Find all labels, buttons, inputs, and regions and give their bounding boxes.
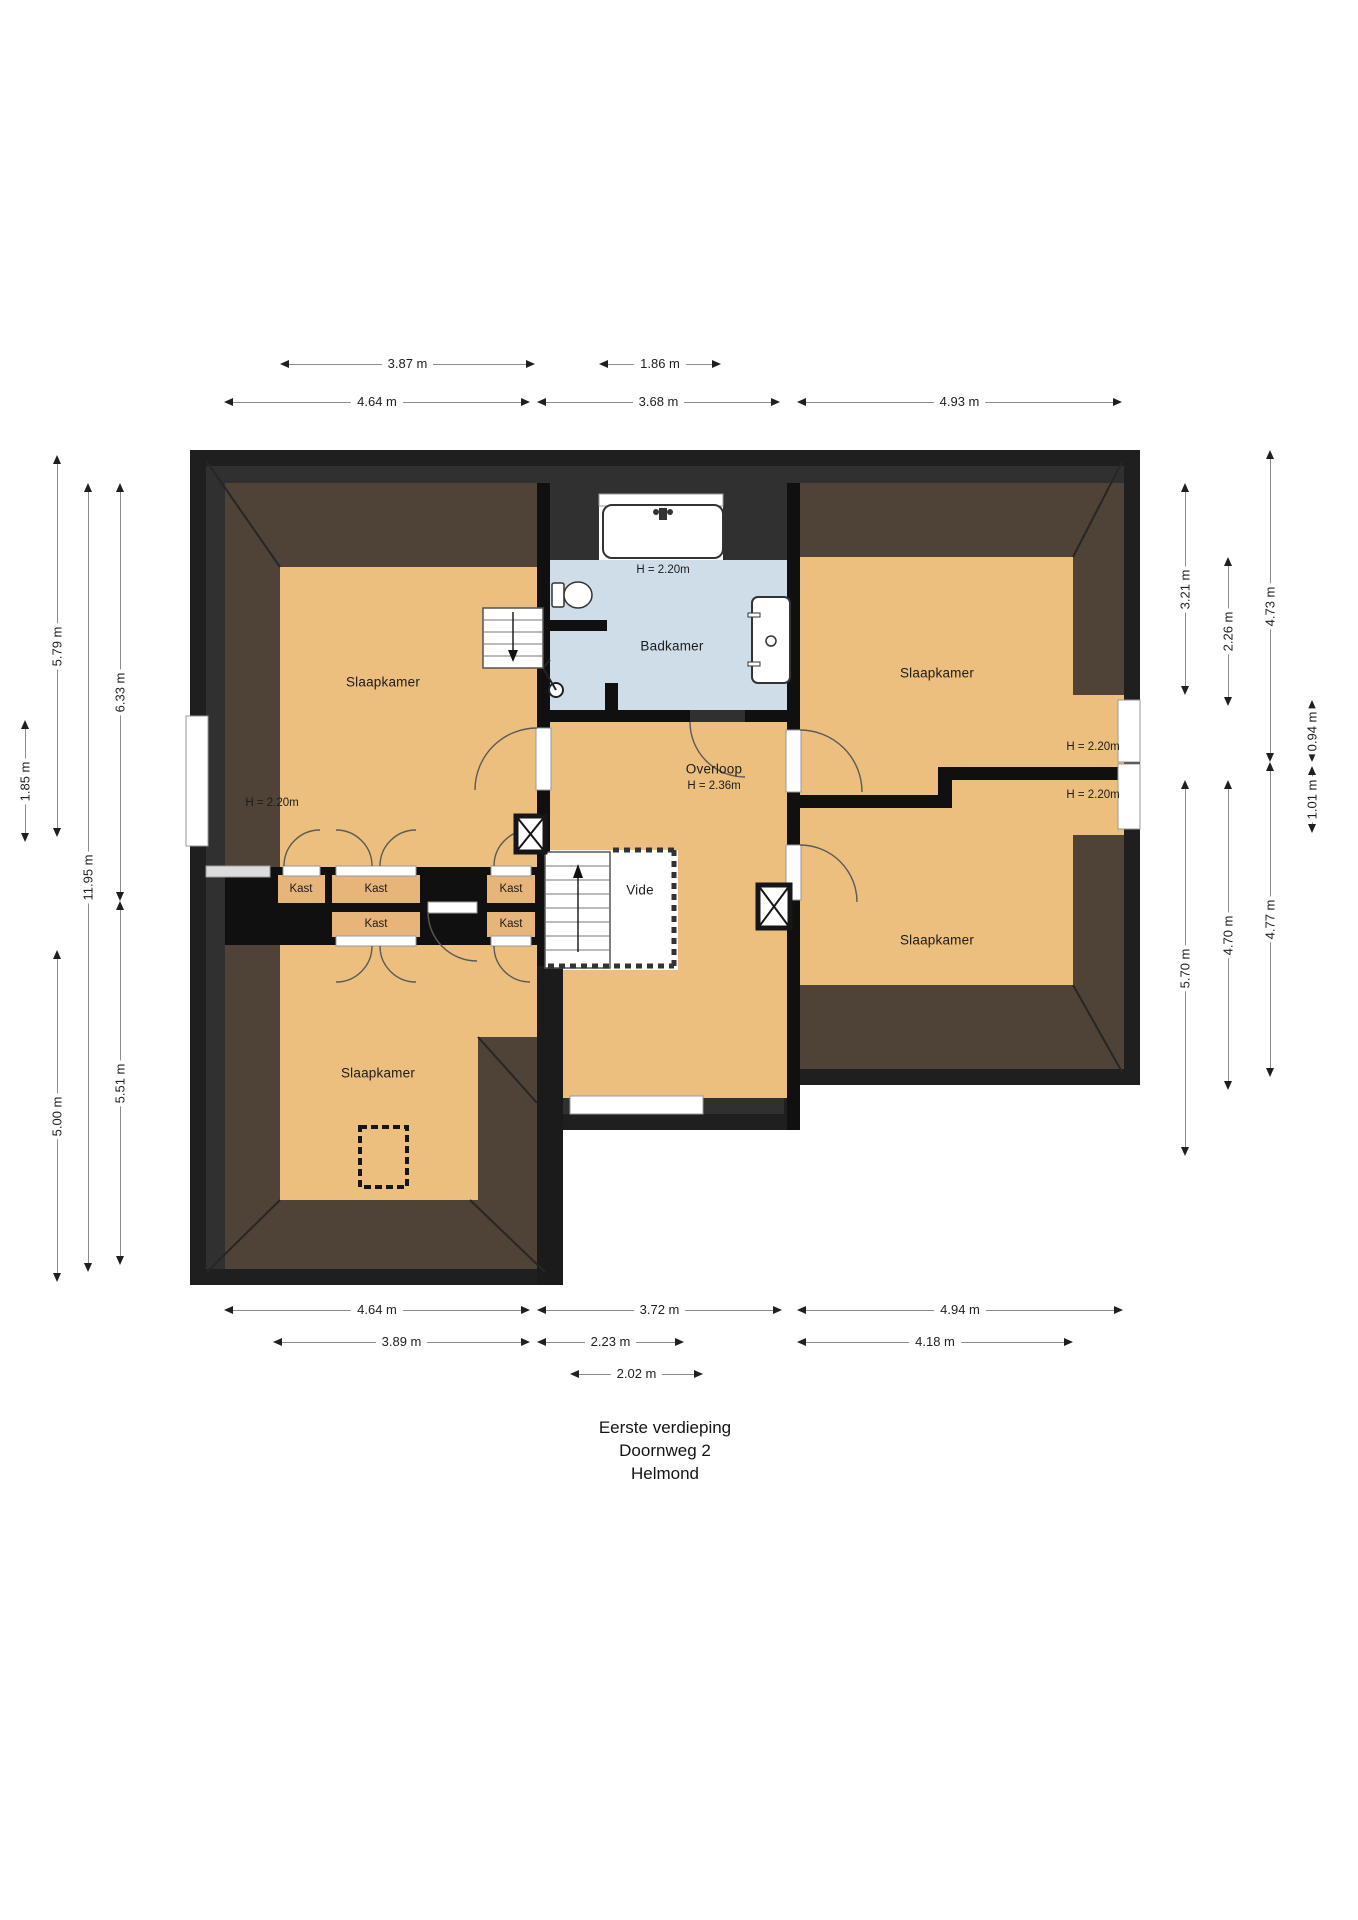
door-kast3 [336,936,416,946]
door-kast1 [283,866,320,876]
door-bedroom-topright [786,730,801,792]
dim-right-226: 2.26 m [1222,557,1234,706]
bathtub-icon [603,505,723,558]
label-kast-4: Kast [499,883,522,895]
label-bedroom-bottomleft: Slaapkamer [341,1066,415,1081]
label-kast-2: Kast [364,883,387,895]
dim-left-551: 5.51 m [114,901,126,1265]
door-kast5 [491,936,531,946]
window-south [570,1096,703,1114]
dim-right-470: 4.70 m [1222,780,1234,1090]
dim-top-387: 3.87 m [280,358,535,370]
stairs-down [483,608,543,668]
dim-bottom-418: 4.18 m [797,1336,1073,1348]
label-vide: Vide [626,883,654,898]
label-bathroom: Badkamer [640,639,703,654]
dim-bottom-202: 2.02 m [570,1368,703,1380]
label-h-overloop: H = 2.36m [687,780,740,792]
toilet-icon [552,582,592,608]
room-floors [225,494,1124,1200]
label-h-right-1: H = 2.20m [1066,741,1119,753]
dim-right-094: 0.94 m [1306,700,1318,762]
shaft-box-2 [758,885,790,928]
shaft-box-1 [516,816,545,852]
dim-bottom-494: 4.94 m [797,1304,1123,1316]
dim-left-633: 6.33 m [114,483,126,901]
door-bedroom-topleft [536,728,551,790]
door-kast2 [336,866,416,876]
label-h-bathroom: H = 2.20m [636,564,689,576]
dim-top-368: 3.68 m [537,396,780,408]
label-kast-1: Kast [289,883,312,895]
label-bedroom-topleft: Slaapkamer [346,675,420,690]
label-overloop: Overloop [686,762,742,777]
dim-left-500: 5.00 m [51,950,63,1282]
window-closet-row [206,866,270,877]
dim-left-1195: 11.95 m [82,483,94,1272]
floorplan-drawing [0,0,1358,1920]
label-bedroom-bottomright: Slaapkamer [900,933,974,948]
label-bedroom-topright: Slaapkamer [900,666,974,681]
label-kast-3: Kast [364,918,387,930]
window-left [186,716,208,846]
dim-left-579: 5.79 m [51,455,63,837]
floorplan-page: Slaapkamer H = 2.20m Badkamer H = 2.20m … [0,0,1358,1920]
dim-right-473: 4.73 m [1264,450,1276,762]
dim-right-477: 4.77 m [1264,762,1276,1077]
label-h-bedroom-topleft: H = 2.20m [245,797,298,809]
dim-top-493: 4.93 m [797,396,1122,408]
label-kast-5: Kast [499,918,522,930]
plan-title-city: Helmond [599,1462,731,1485]
dim-right-570: 5.70 m [1179,780,1191,1156]
dim-top-464: 4.64 m [224,396,530,408]
window-right-bottom [1118,764,1140,829]
dim-right-101: 1.01 m [1306,766,1318,833]
door-closet-mid [428,902,477,913]
dim-bottom-464: 4.64 m [224,1304,530,1316]
dim-bottom-372: 3.72 m [537,1304,782,1316]
window-right-top [1118,700,1140,762]
plan-title-address: Doornweg 2 [599,1439,731,1462]
dim-left-185: 1.85 m [19,720,31,842]
plan-title-floor: Eerste verdieping [599,1416,731,1439]
dim-bottom-223: 2.23 m [537,1336,684,1348]
door-kast4 [491,866,531,876]
dim-top-186: 1.86 m [599,358,721,370]
floor-overloop [537,722,787,850]
plan-title: Eerste verdieping Doornweg 2 Helmond [599,1416,731,1485]
washbasin-icon [748,597,790,683]
dim-right-321: 3.21 m [1179,483,1191,695]
stairs-up [545,852,610,968]
dim-bottom-389: 3.89 m [273,1336,530,1348]
label-h-right-2: H = 2.20m [1066,789,1119,801]
floor-overloop-south [550,970,787,1098]
